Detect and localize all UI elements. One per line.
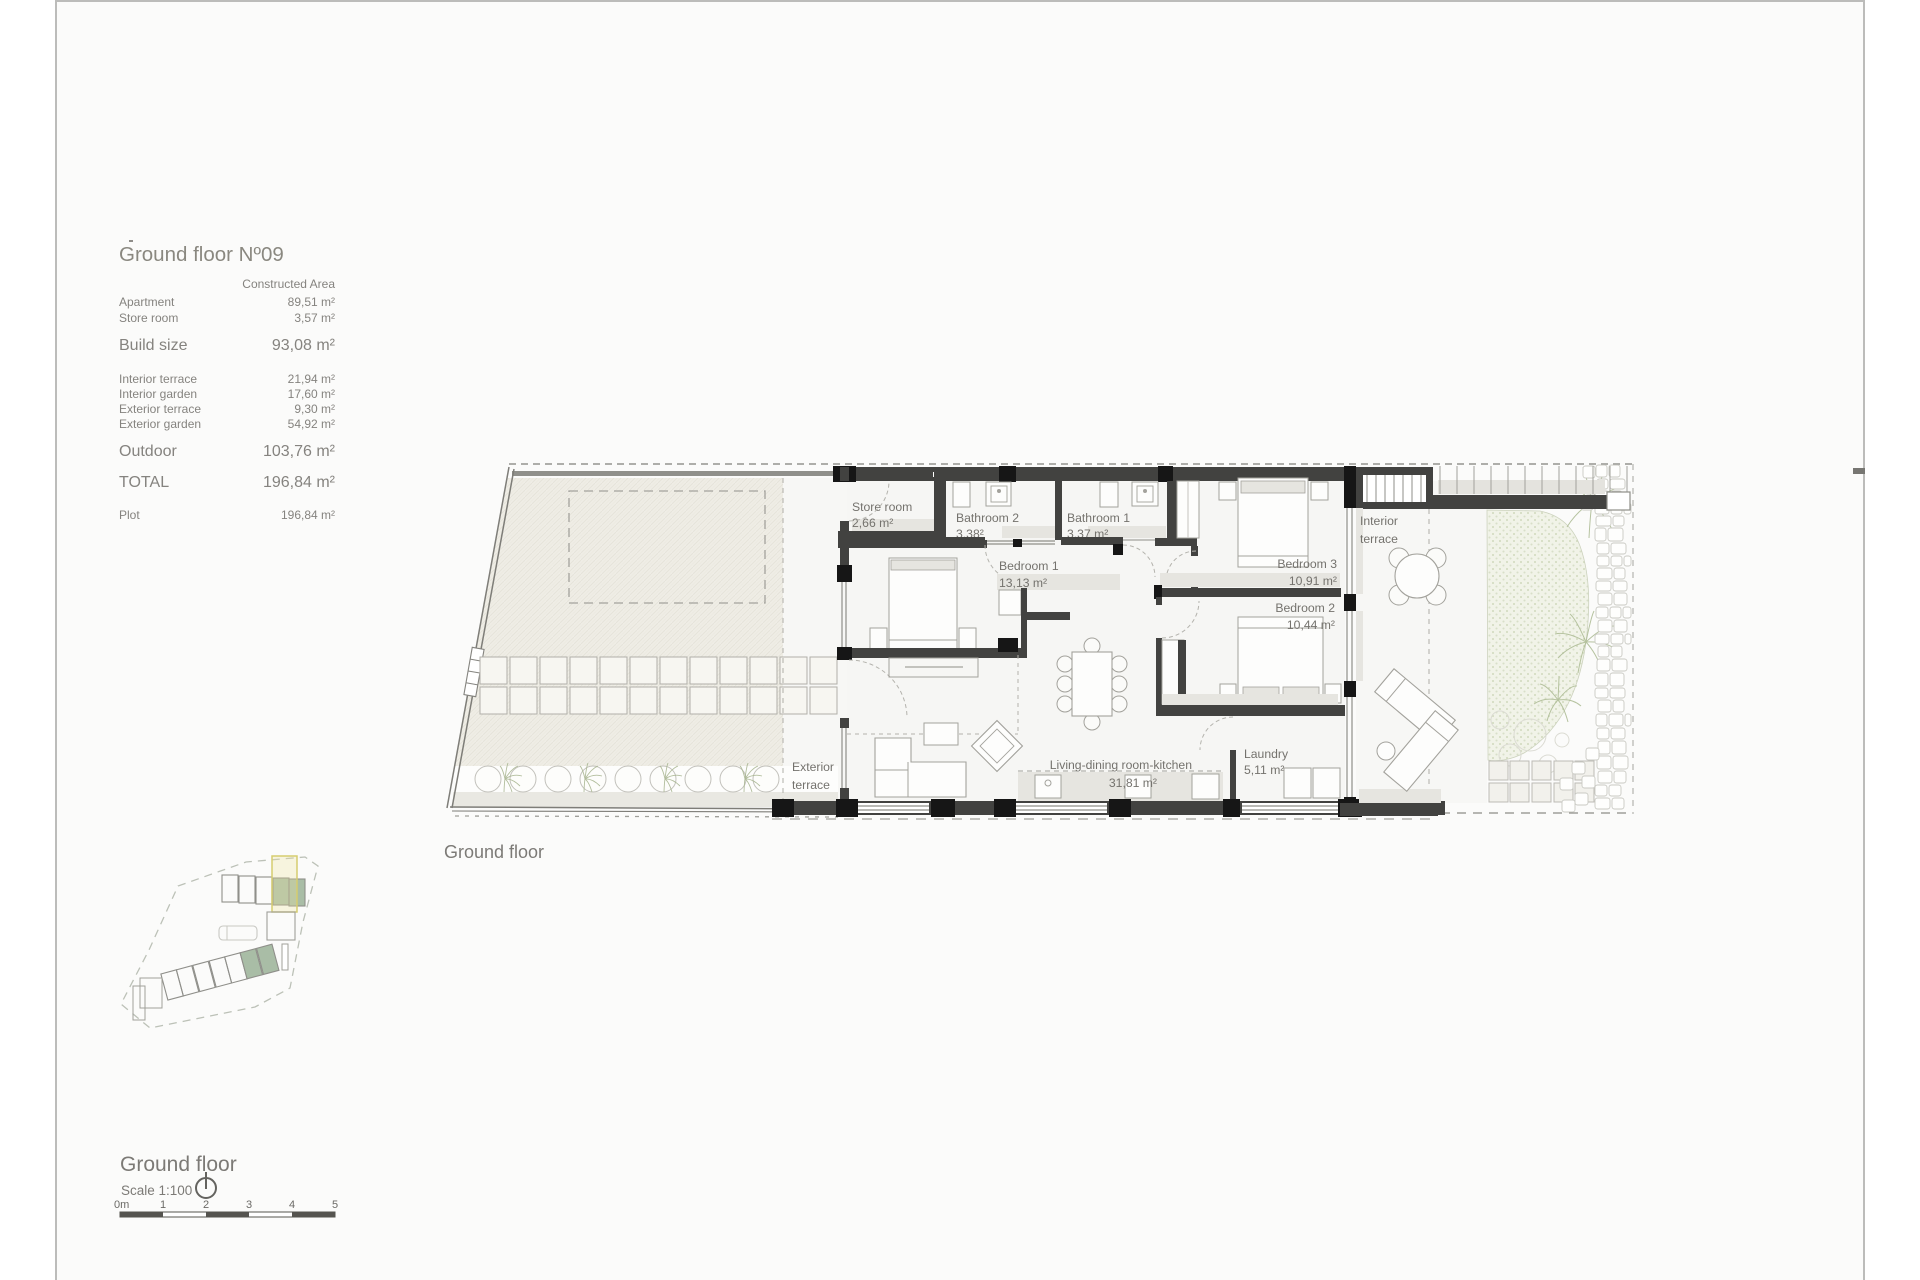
svg-text:Bedroom 2: Bedroom 2: [1275, 601, 1335, 615]
svg-text:Store room: Store room: [119, 311, 178, 325]
svg-text:Exterior: Exterior: [792, 760, 834, 774]
svg-text:2: 2: [203, 1199, 209, 1211]
svg-text:Bathroom 2: Bathroom 2: [956, 511, 1019, 525]
svg-text:54,92 m²: 54,92 m²: [288, 417, 335, 431]
svg-text:21,94 m²: 21,94 m²: [288, 372, 335, 386]
svg-text:Exterior garden: Exterior garden: [119, 417, 201, 431]
svg-text:5,11 m²: 5,11 m²: [1244, 763, 1284, 777]
svg-text:196,84 m²: 196,84 m²: [263, 474, 336, 491]
svg-text:Interior garden: Interior garden: [119, 387, 197, 401]
svg-text:89,51 m²: 89,51 m²: [288, 295, 335, 309]
svg-text:1: 1: [160, 1199, 166, 1211]
svg-text:17,60 m²: 17,60 m²: [288, 387, 335, 401]
svg-text:196,84 m²: 196,84 m²: [281, 508, 335, 522]
svg-text:Bedroom 3: Bedroom 3: [1277, 557, 1337, 571]
svg-text:Store room: Store room: [852, 500, 912, 514]
svg-text:2,66 m²: 2,66 m²: [852, 516, 893, 530]
svg-text:Interior terrace: Interior terrace: [119, 372, 197, 386]
svg-text:Bedroom 1: Bedroom 1: [999, 559, 1059, 573]
svg-text:10,91 m²: 10,91 m²: [1289, 574, 1337, 588]
svg-text:10,44 m²: 10,44 m²: [1287, 618, 1335, 632]
svg-text:TOTAL: TOTAL: [119, 474, 169, 491]
svg-text:9,30 m²: 9,30 m²: [294, 402, 335, 416]
svg-text:terrace: terrace: [792, 778, 830, 792]
svg-text:Living-dining room-kitchen: Living-dining room-kitchen: [1050, 758, 1192, 772]
svg-text:103,76 m²: 103,76 m²: [263, 443, 336, 460]
svg-text:Interior: Interior: [1360, 514, 1398, 528]
svg-text:Bathroom 1: Bathroom 1: [1067, 511, 1130, 525]
svg-text:Ground floor Nº09: Ground floor Nº09: [119, 243, 284, 266]
svg-text:0m: 0m: [114, 1199, 129, 1211]
svg-text:Outdoor: Outdoor: [119, 443, 177, 460]
svg-text:13,13 m²: 13,13 m²: [999, 576, 1047, 590]
svg-text:3: 3: [246, 1199, 252, 1211]
svg-text:Ground floor: Ground floor: [120, 1153, 237, 1176]
svg-text:Ground floor: Ground floor: [444, 842, 544, 862]
svg-text:Build size: Build size: [119, 337, 188, 354]
svg-text:terrace: terrace: [1360, 532, 1398, 546]
svg-text:4: 4: [289, 1199, 295, 1211]
svg-text:Scale 1:100: Scale 1:100: [121, 1183, 192, 1198]
svg-text:Constructed Area: Constructed Area: [242, 277, 335, 291]
svg-text:5: 5: [332, 1199, 338, 1211]
svg-text:93,08 m²: 93,08 m²: [272, 337, 336, 354]
svg-text:Laundry: Laundry: [1244, 747, 1289, 761]
svg-text:31,81 m²: 31,81 m²: [1109, 776, 1157, 790]
svg-text:Apartment: Apartment: [119, 295, 175, 309]
svg-text:3,57 m²: 3,57 m²: [294, 311, 335, 325]
svg-text:Exterior terrace: Exterior terrace: [119, 402, 201, 416]
svg-text:Plot: Plot: [119, 508, 140, 522]
